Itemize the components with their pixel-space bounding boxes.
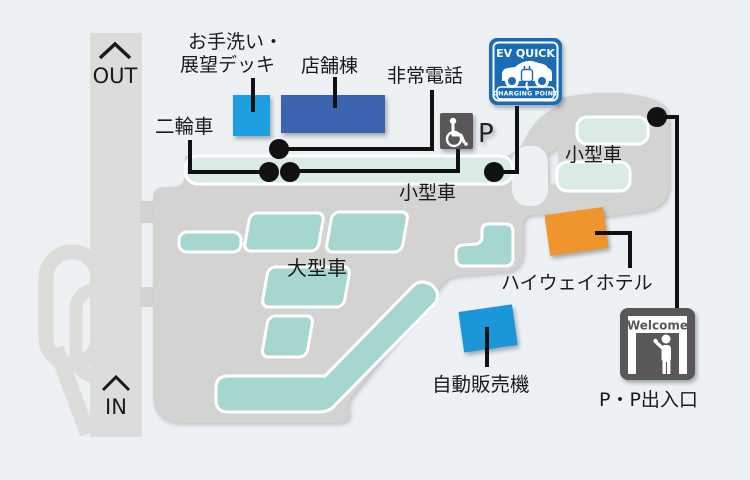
wheelchair-sign-panel <box>440 113 473 149</box>
ev-sign-subtitle: CHARGING POINT <box>493 91 558 98</box>
accessible-parking-sign: P <box>440 113 494 149</box>
welcome-gate-right-post <box>679 333 687 374</box>
large-car-block-1 <box>244 213 325 251</box>
large-car-block-2 <box>325 212 408 252</box>
welcome-gate-sign: Welcome <box>620 308 695 380</box>
ev-charging-dot <box>484 162 504 182</box>
gate-label: P・P出入口 <box>599 389 698 411</box>
out-label: OUT <box>93 64 138 88</box>
ev-sign-title: EV QUICK <box>496 47 555 60</box>
ramp-roads <box>46 33 158 437</box>
emergency-phone-label: 非常電話 <box>387 65 463 87</box>
large-car-label: 大型車 <box>287 256 347 280</box>
accessible-parking-dot <box>280 162 300 182</box>
restroom-label-line1: お手洗い・ <box>188 31 283 53</box>
vending-label: 自動販売機 <box>432 373 530 396</box>
large-car-row-left <box>179 232 241 252</box>
small-car-row-east-1 <box>577 117 648 144</box>
gate-dot <box>647 107 667 127</box>
accessible-parking-p-label: P <box>478 119 494 149</box>
rest-area-map: EV QUICK CHARGING POINT P Welcome <box>0 0 750 476</box>
motorcycle-dot <box>259 162 279 182</box>
welcome-sign-text: Welcome <box>627 319 688 333</box>
ev-charging-sign: EV QUICK CHARGING POINT <box>489 38 562 105</box>
small-car-row-east-2 <box>557 162 630 191</box>
hotel-label: ハイウェイホテル <box>501 272 653 294</box>
emergency-phone-dot <box>269 139 289 159</box>
restroom-label-line2: 展望デッキ <box>180 54 275 76</box>
store-label: 店舗棟 <box>301 55 358 77</box>
small-car-east-label: 小型車 <box>565 144 622 166</box>
welcome-gate-left-post <box>628 333 636 374</box>
in-label: IN <box>105 395 127 419</box>
large-car-block-4 <box>261 316 313 357</box>
motorcycle-label: 二輪車 <box>155 115 214 138</box>
small-car-main-label: 小型車 <box>399 182 456 204</box>
